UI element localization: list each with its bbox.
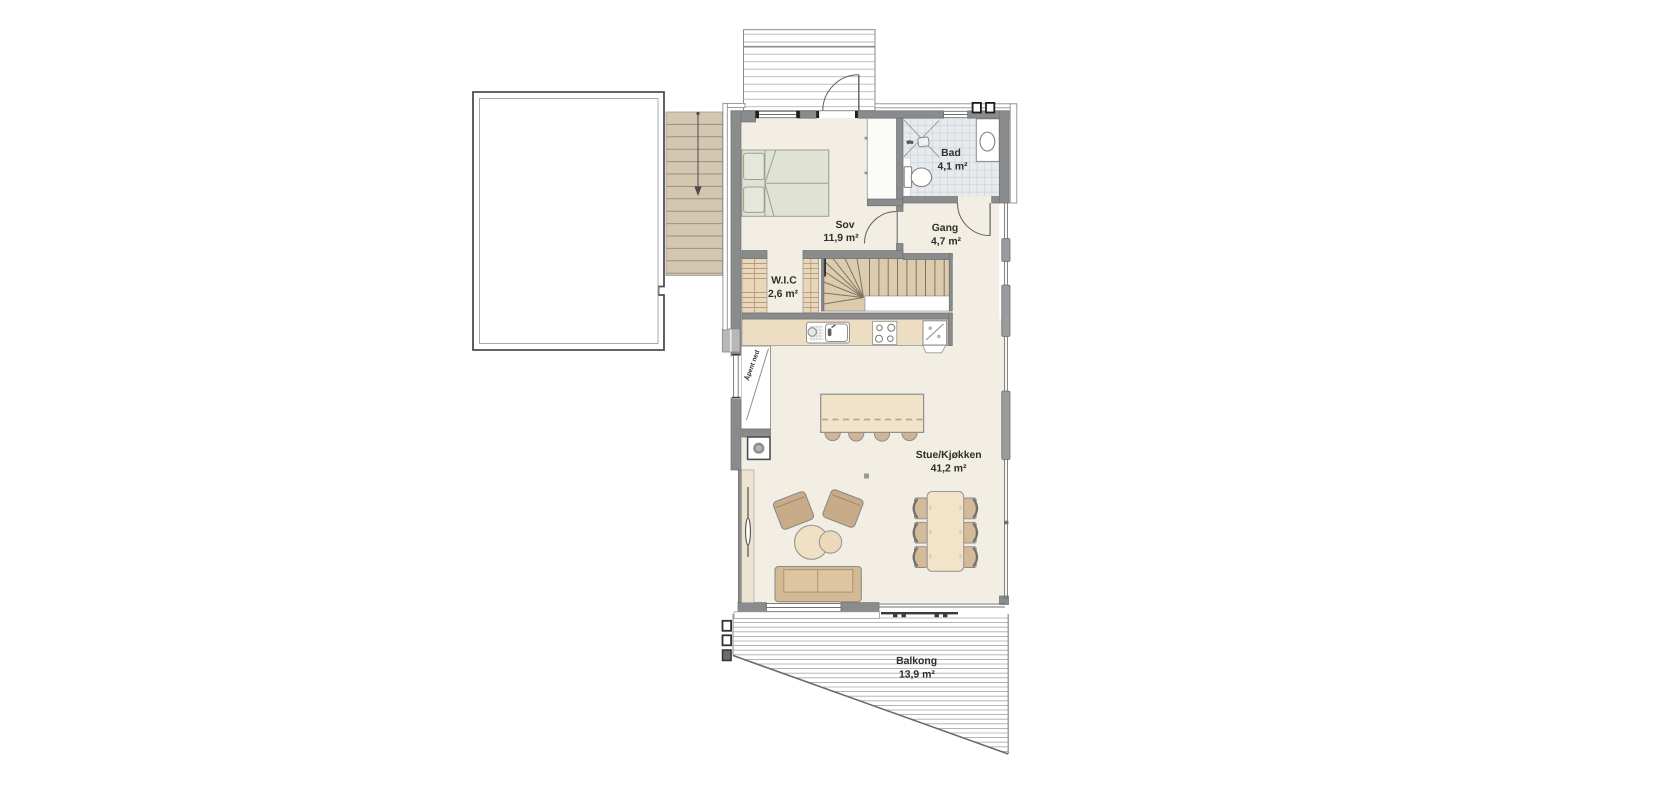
svg-text:Sov: Sov <box>835 220 854 231</box>
svg-text:Bad: Bad <box>941 148 961 159</box>
svg-text:Balkong: Balkong <box>896 656 937 667</box>
svg-text:13,9 m²: 13,9 m² <box>899 670 935 681</box>
svg-text:4,7 m²: 4,7 m² <box>931 237 962 248</box>
svg-text:W.I.C: W.I.C <box>771 276 797 287</box>
svg-text:Stue/Kjøkken: Stue/Kjøkken <box>916 450 982 461</box>
svg-text:11,9 m²: 11,9 m² <box>823 233 859 244</box>
svg-text:Gang: Gang <box>932 223 959 234</box>
svg-text:41,2 m²: 41,2 m² <box>931 464 967 475</box>
svg-text:2,6 m²: 2,6 m² <box>768 289 799 300</box>
svg-text:4,1 m²: 4,1 m² <box>937 162 968 173</box>
